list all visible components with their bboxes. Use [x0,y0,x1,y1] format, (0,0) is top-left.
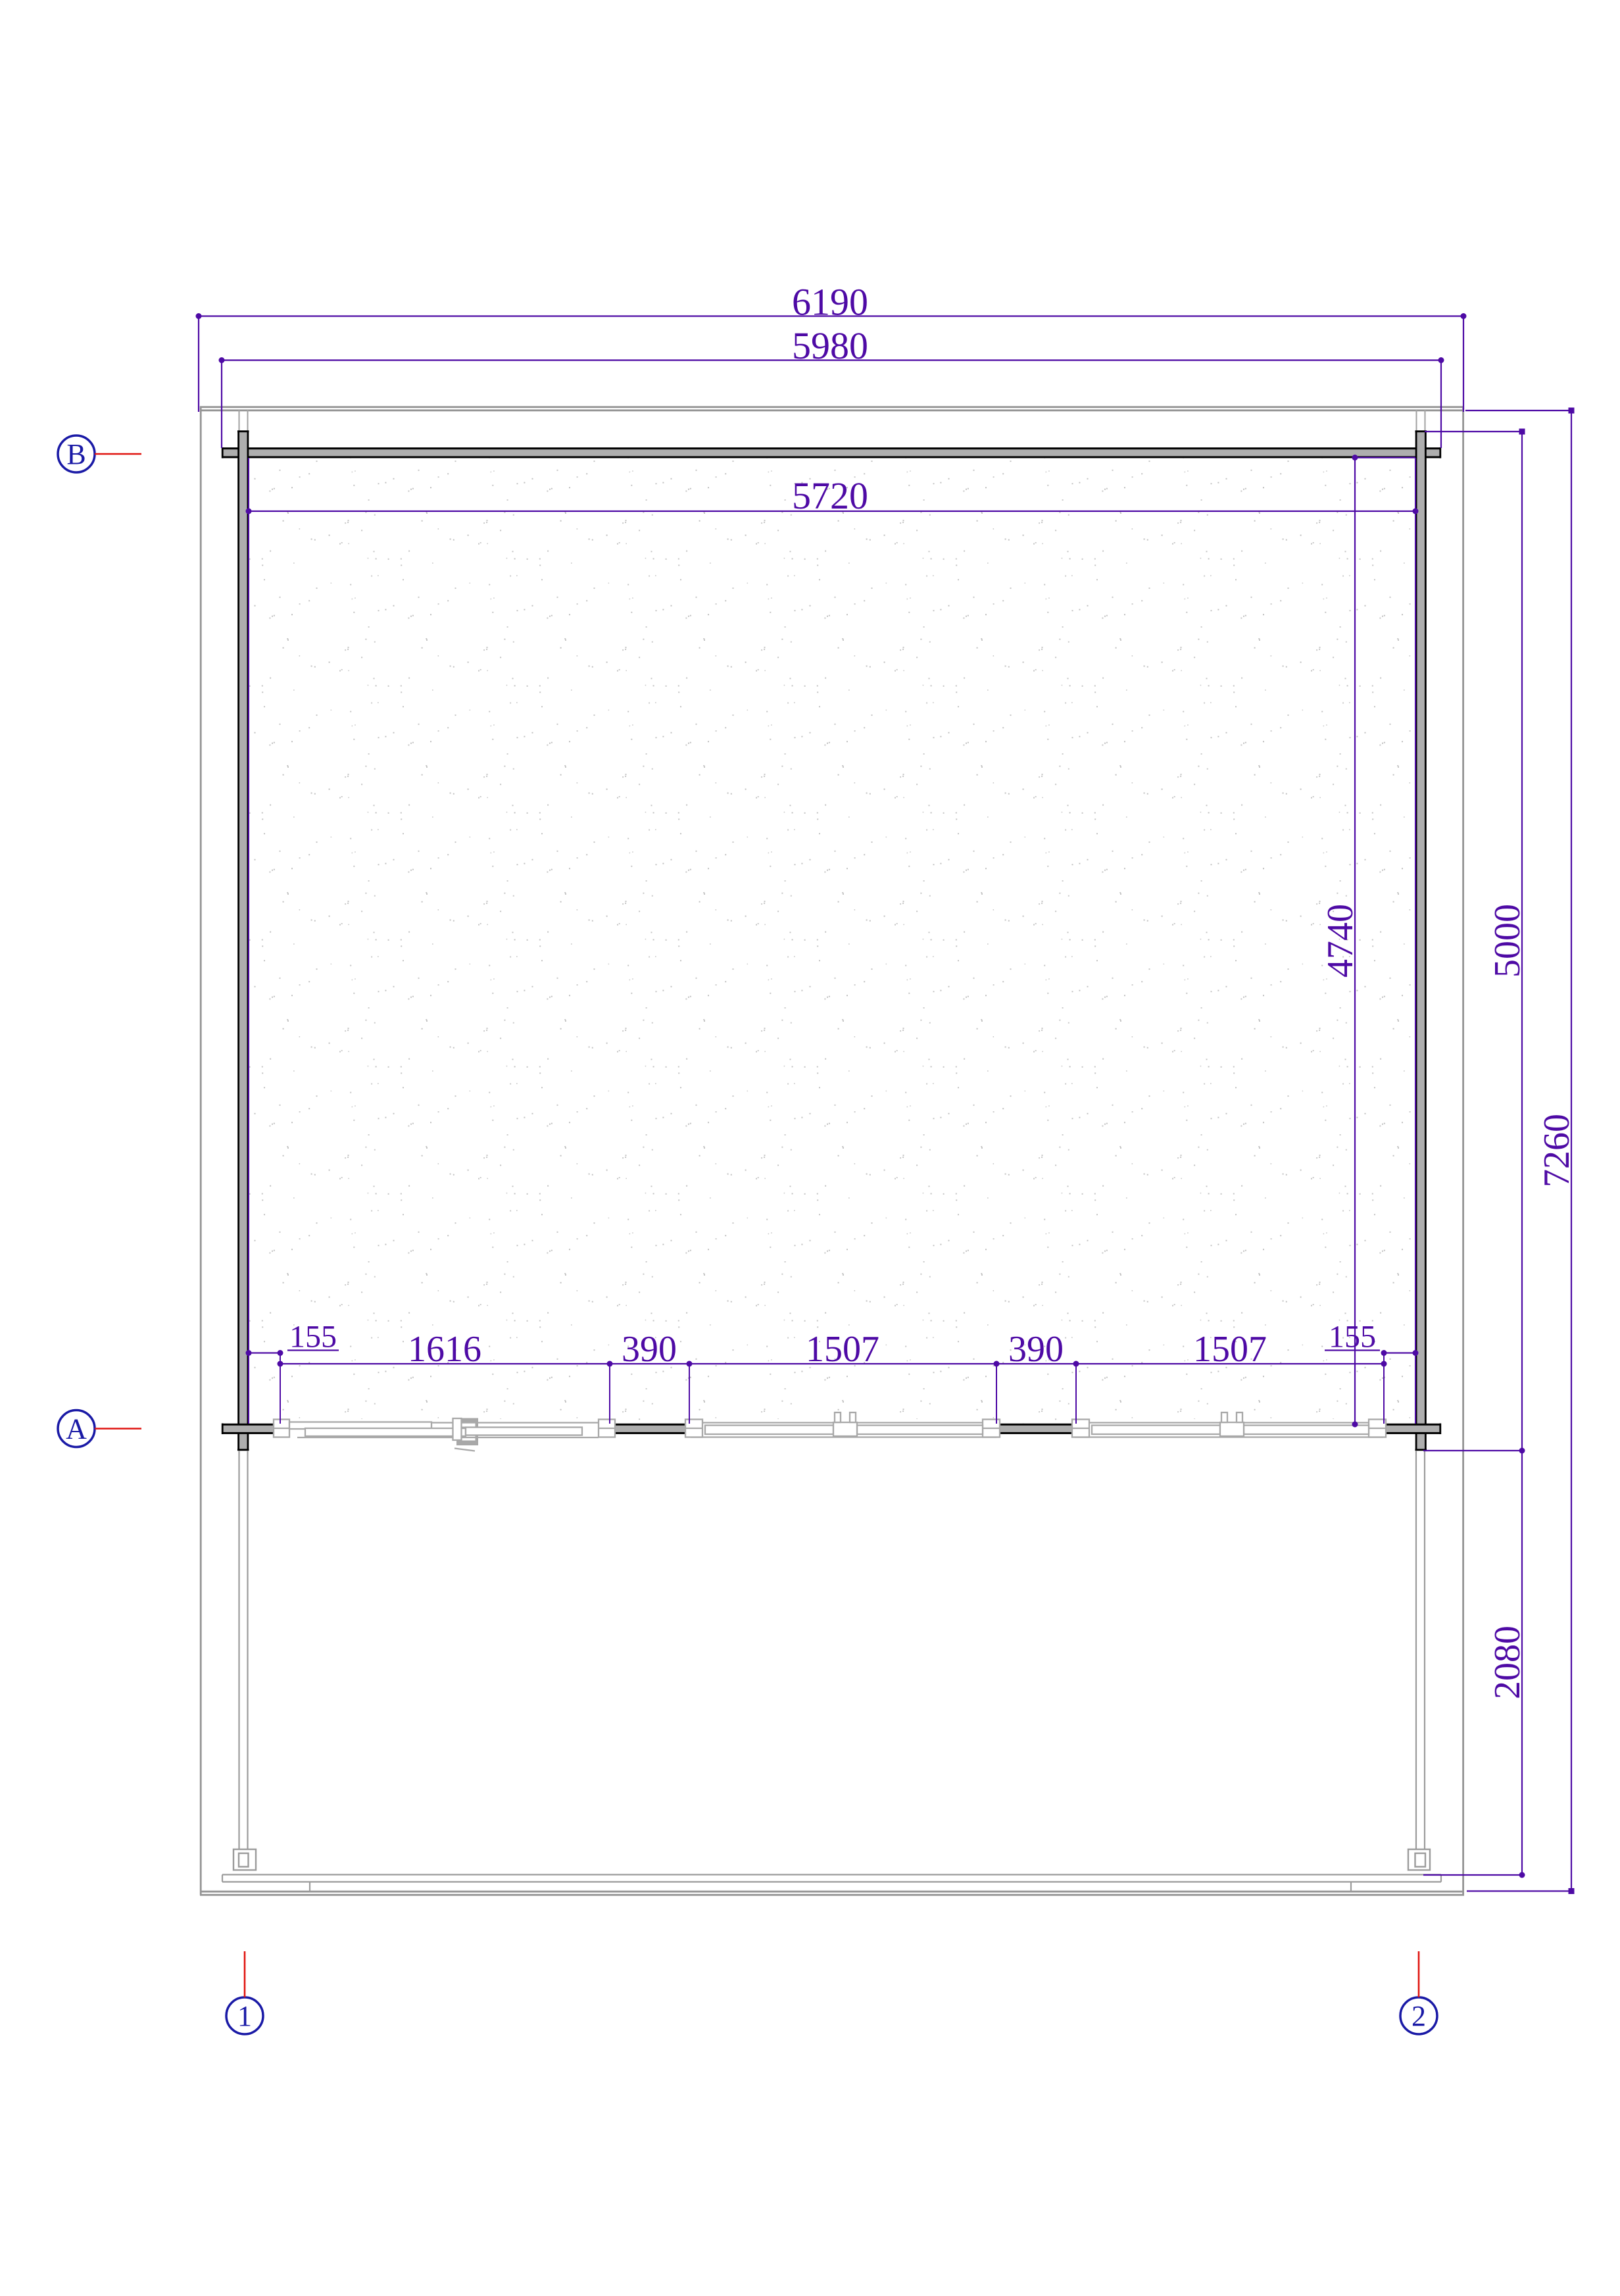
svg-text:2: 2 [1411,2000,1426,2032]
svg-text:155: 155 [289,1320,337,1355]
svg-text:1616: 1616 [408,1329,481,1370]
svg-text:5980: 5980 [792,324,868,367]
svg-text:6190: 6190 [792,281,868,324]
svg-text:390: 390 [622,1329,677,1370]
svg-text:5000: 5000 [1487,904,1528,978]
svg-text:1507: 1507 [1193,1329,1267,1370]
svg-text:4740: 4740 [1320,904,1361,978]
svg-text:7260: 7260 [1536,1114,1577,1187]
svg-text:390: 390 [1008,1329,1064,1370]
svg-text:B: B [66,438,86,470]
svg-text:5720: 5720 [792,474,868,517]
svg-text:2080: 2080 [1487,1626,1528,1699]
svg-text:1507: 1507 [806,1329,879,1370]
svg-text:155: 155 [1329,1320,1376,1355]
svg-text:A: A [66,1413,87,1445]
svg-text:1: 1 [237,2000,252,2032]
